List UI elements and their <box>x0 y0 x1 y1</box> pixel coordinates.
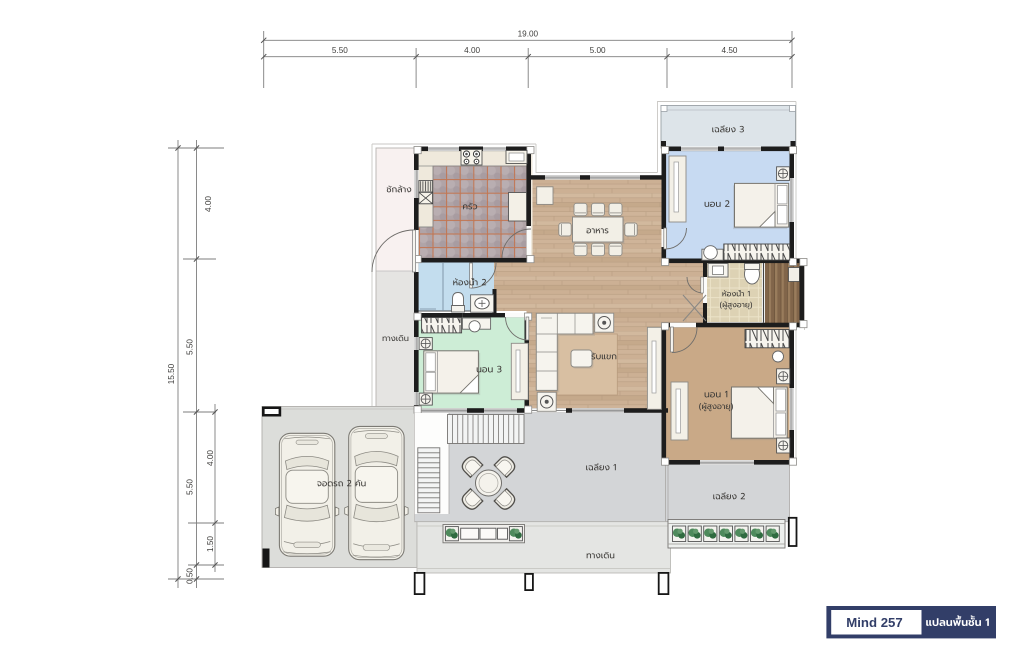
svg-text:Mind 257: Mind 257 <box>846 615 902 630</box>
svg-text:4.00: 4.00 <box>464 46 480 55</box>
svg-text:15.50: 15.50 <box>167 363 176 384</box>
svg-text:1.50: 1.50 <box>206 536 215 552</box>
svg-text:19.00: 19.00 <box>518 30 539 39</box>
svg-text:4.00: 4.00 <box>204 196 213 212</box>
svg-text:5.50: 5.50 <box>186 479 195 495</box>
svg-text:5.50: 5.50 <box>332 46 348 55</box>
svg-text:4.00: 4.00 <box>206 450 215 466</box>
svg-text:4.50: 4.50 <box>722 46 738 55</box>
svg-text:5.50: 5.50 <box>186 339 195 355</box>
svg-text:5.00: 5.00 <box>590 46 606 55</box>
svg-text:0.50: 0.50 <box>186 568 195 584</box>
